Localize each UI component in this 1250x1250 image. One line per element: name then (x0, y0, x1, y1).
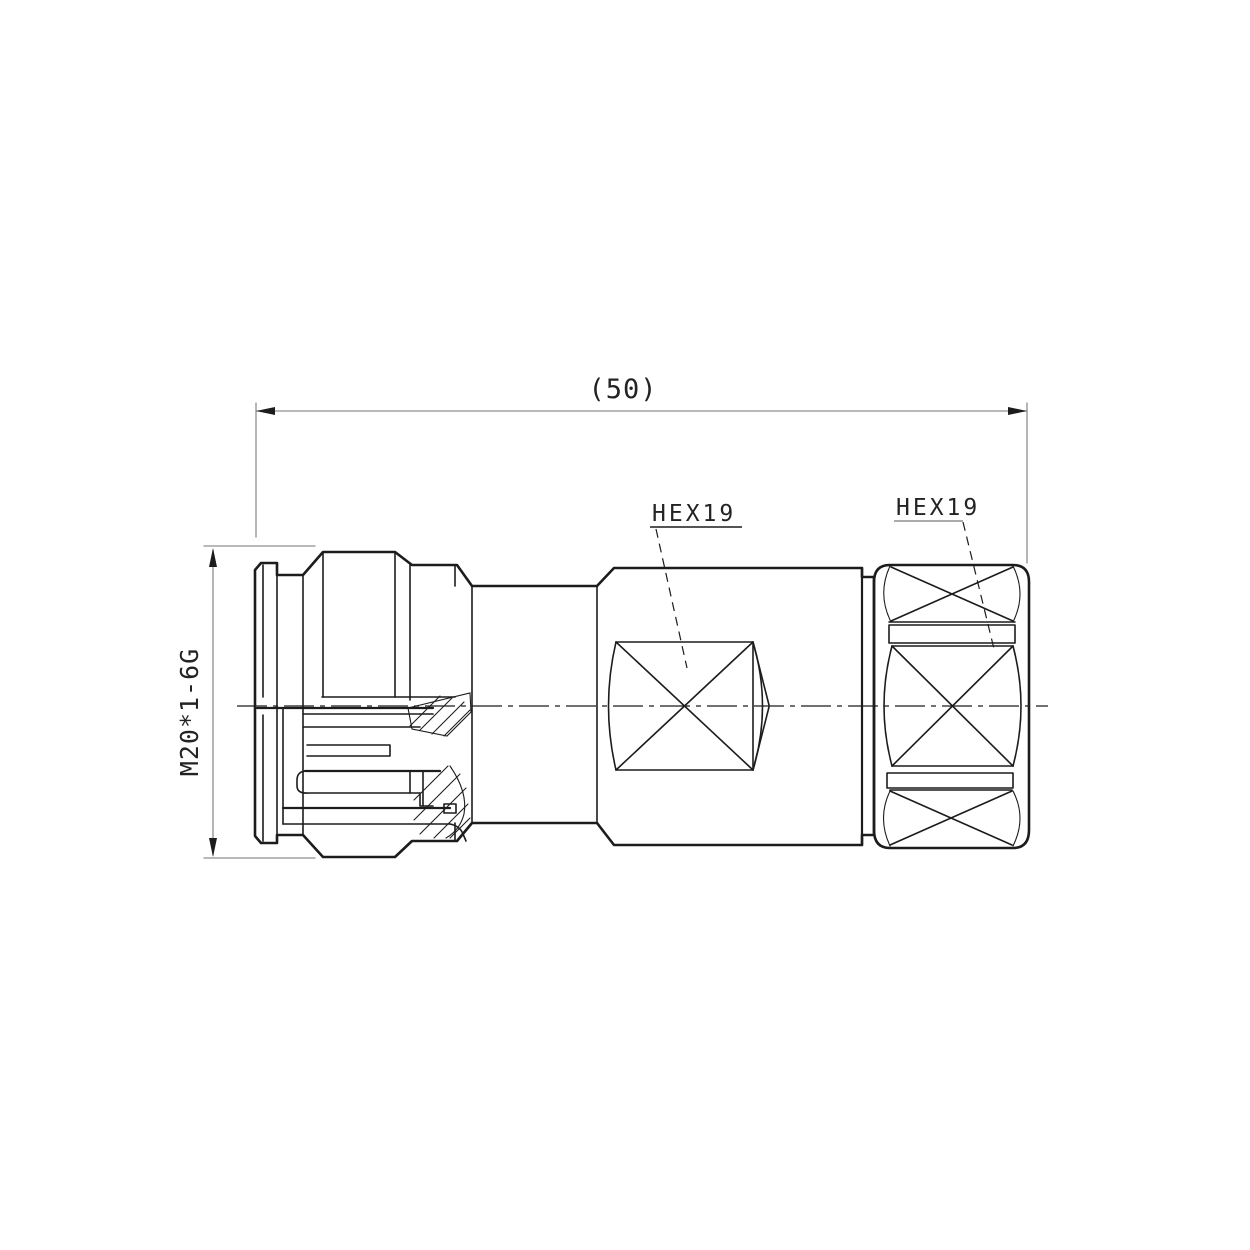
dim-arrow-up (209, 548, 217, 567)
callout-hex-mid: HEX19 (650, 501, 742, 668)
callout-hex-right: HEX19 (894, 495, 995, 653)
dim-arrow-right (1008, 407, 1027, 415)
hex-right-label: HEX19 (896, 495, 980, 521)
spring-finger-assembly (257, 708, 466, 841)
hex-right-cross-top (891, 567, 1013, 621)
hex-right-cross-bottom (890, 791, 1012, 845)
coupling-nut-internal-upper (263, 552, 455, 843)
dimension-thread: M20*1-6G (175, 546, 315, 858)
hex-mid-leader-line (656, 529, 687, 668)
connector-body-outline (255, 552, 874, 857)
drawing-canvas: (50) M20*1-6G HEX19 HEX19 (0, 0, 1250, 1250)
dim-arrow-down (209, 838, 217, 857)
hex-mid-label: HEX19 (652, 501, 736, 527)
dim-arrow-left (256, 407, 275, 415)
dimension-overall-length: (50) (256, 374, 1027, 563)
thread-spec-label: M20*1-6G (175, 648, 204, 776)
overall-length-label: (50) (588, 374, 657, 405)
